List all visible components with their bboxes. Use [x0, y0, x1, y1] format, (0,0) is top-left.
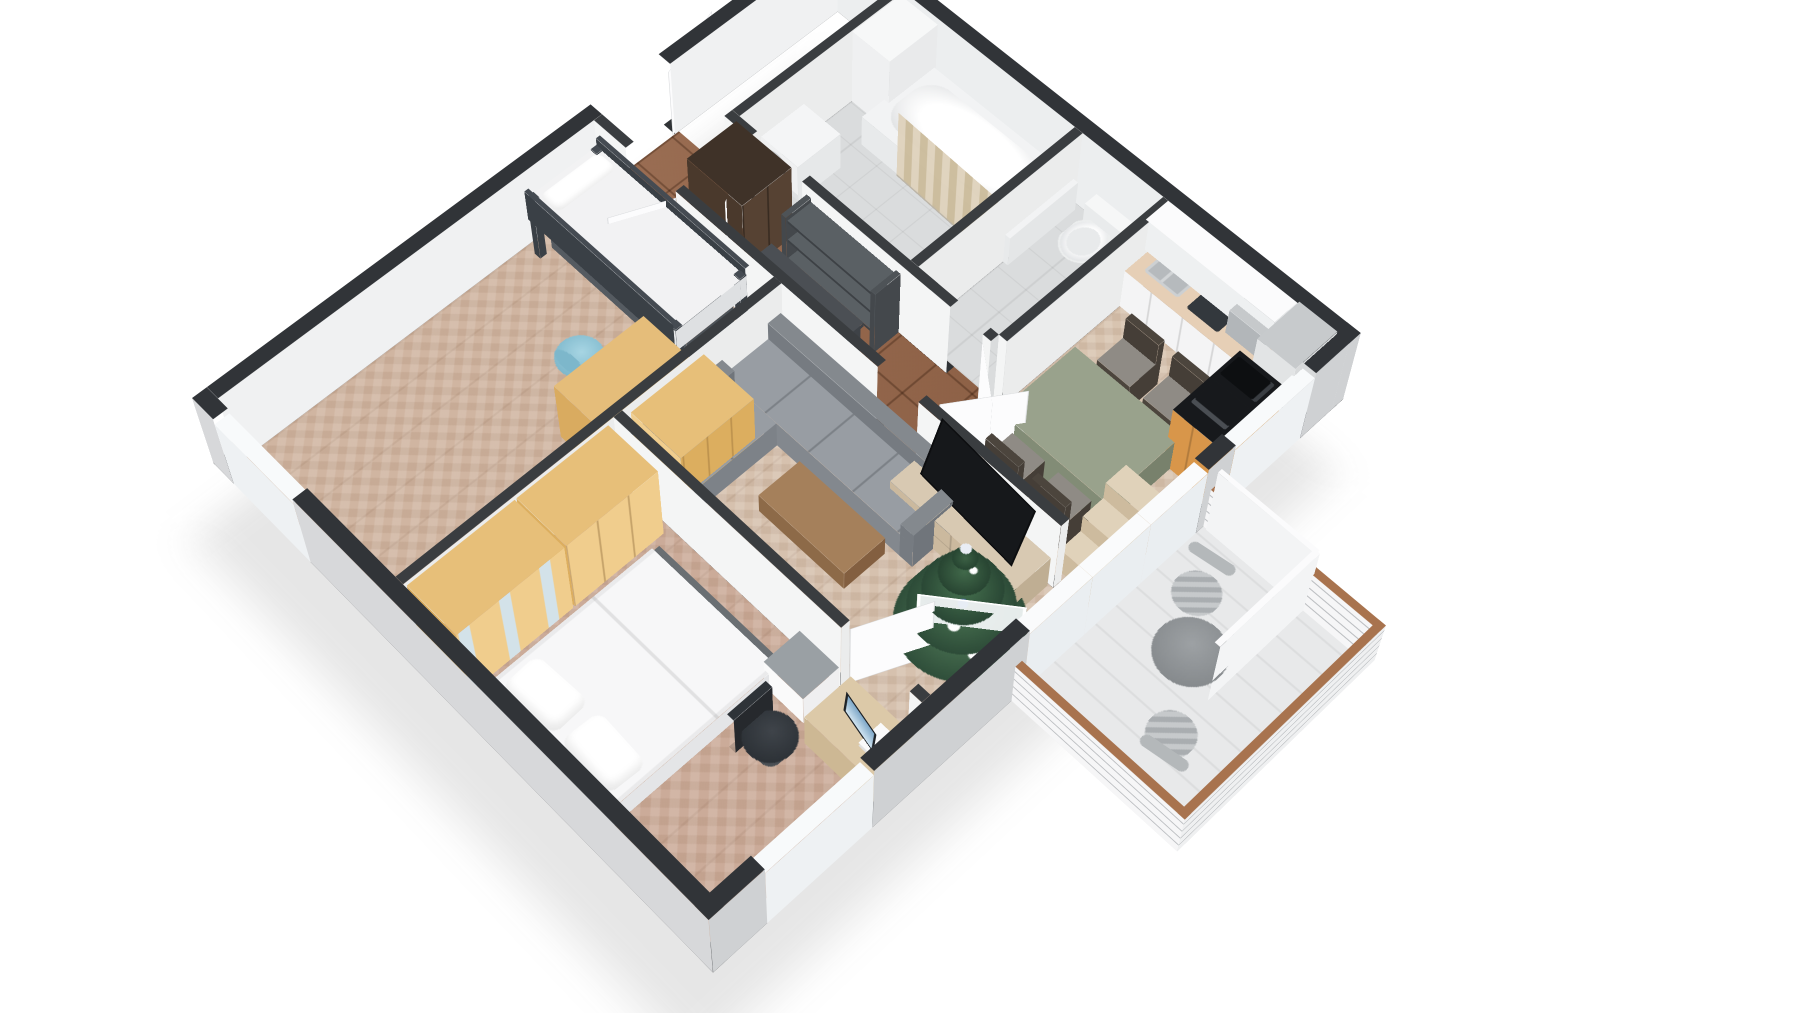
floorplan-canvas[interactable] — [0, 0, 1800, 1013]
